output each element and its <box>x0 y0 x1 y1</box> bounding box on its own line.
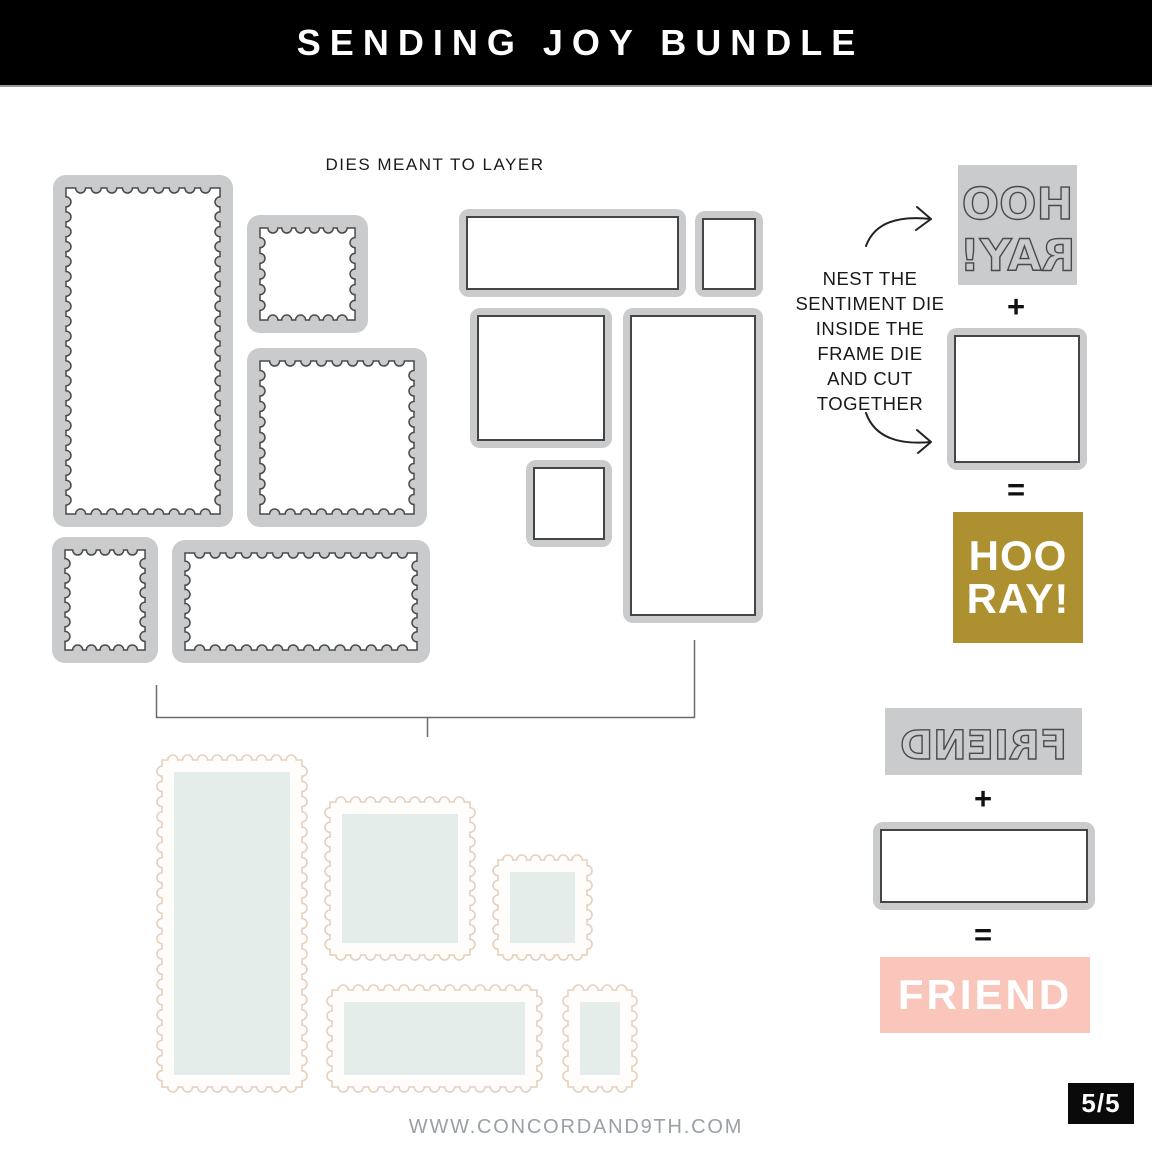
straight-cut-edge <box>881 830 1087 902</box>
straight-cut-edge <box>534 468 604 539</box>
hooray-cut-result: HOO RAY! <box>953 512 1083 643</box>
friend-cut-result: FRIEND <box>880 957 1090 1033</box>
frame-die-small-tall <box>695 211 763 297</box>
instruction-line: AND CUT <box>789 366 951 391</box>
straight-cut-edge <box>467 217 678 289</box>
stamp-cutout-tall <box>157 755 307 1092</box>
scallop-die-small-rect <box>52 537 158 663</box>
frame-die-small-square <box>526 460 612 547</box>
scallop-die-wide-rect <box>172 540 430 663</box>
instruction-line: FRAME DIE <box>789 341 951 366</box>
friend-frame-die <box>873 822 1095 910</box>
curved-arrow-top-icon <box>866 207 931 246</box>
curved-arrow-bottom-icon <box>866 413 931 453</box>
stamp-cutout-small <box>563 985 637 1092</box>
straight-cut-edge <box>631 316 755 615</box>
scallop-die-tall <box>53 175 233 527</box>
hooray-frame-die <box>947 328 1087 470</box>
mirrored-sentiment-text: RAY! <box>960 231 1076 282</box>
scallop-cut-edge <box>65 550 145 650</box>
plus-sign: + <box>1007 289 1025 325</box>
stamp-cutout-wide <box>327 985 542 1092</box>
stamp-center-panel <box>580 1002 620 1075</box>
instruction-line: TOGETHER <box>789 391 951 416</box>
hooray-result-line: HOO <box>969 535 1068 578</box>
page-indicator-badge: 5/5 <box>1068 1083 1134 1124</box>
mirrored-sentiment-text: FRIEND <box>900 723 1067 769</box>
mirrored-sentiment-text: HOO <box>962 179 1074 230</box>
footer-website: WWW.CONCORDAND9TH.COM <box>0 1116 1152 1139</box>
scallop-cut-edge <box>260 228 355 320</box>
instruction-line: SENTIMENT DIE <box>789 291 951 316</box>
scallop-cut-edge <box>66 188 220 514</box>
equals-sign: = <box>974 917 992 953</box>
plus-sign: + <box>974 781 992 817</box>
straight-cut-edge <box>703 219 755 289</box>
page: SENDING JOY BUNDLE DIES MEANT TO LAYER H… <box>0 0 1152 1152</box>
instruction-line: INSIDE THE <box>789 316 951 341</box>
stamp-center-panel <box>344 1002 525 1075</box>
hooray-result-line: RAY! <box>967 578 1070 621</box>
frame-die-square <box>470 308 612 448</box>
instruction-line: NEST THE <box>789 266 951 291</box>
scallop-die-small-square <box>247 215 368 333</box>
scallop-cut-edge <box>260 361 414 514</box>
stamp-center-panel <box>174 772 290 1075</box>
scallop-cut-edge <box>185 553 417 650</box>
hooray-sentiment-die: HOORAY! <box>958 165 1077 285</box>
straight-cut-edge <box>955 336 1079 462</box>
scallop-die-square <box>247 348 427 527</box>
friend-sentiment-die: FRIEND <box>885 708 1082 775</box>
instruction-text: NEST THE SENTIMENT DIE INSIDE THE FRAME … <box>789 266 951 416</box>
straight-cut-edge <box>478 316 604 440</box>
stamp-center-panel <box>342 814 458 943</box>
frame-die-wide-rect <box>459 209 686 297</box>
frame-die-tall <box>623 308 763 623</box>
equals-sign: = <box>1007 472 1025 508</box>
stamp-cutout-square <box>325 797 475 960</box>
stamp-center-panel <box>510 872 575 943</box>
stamp-cutout-small-square <box>493 855 592 960</box>
